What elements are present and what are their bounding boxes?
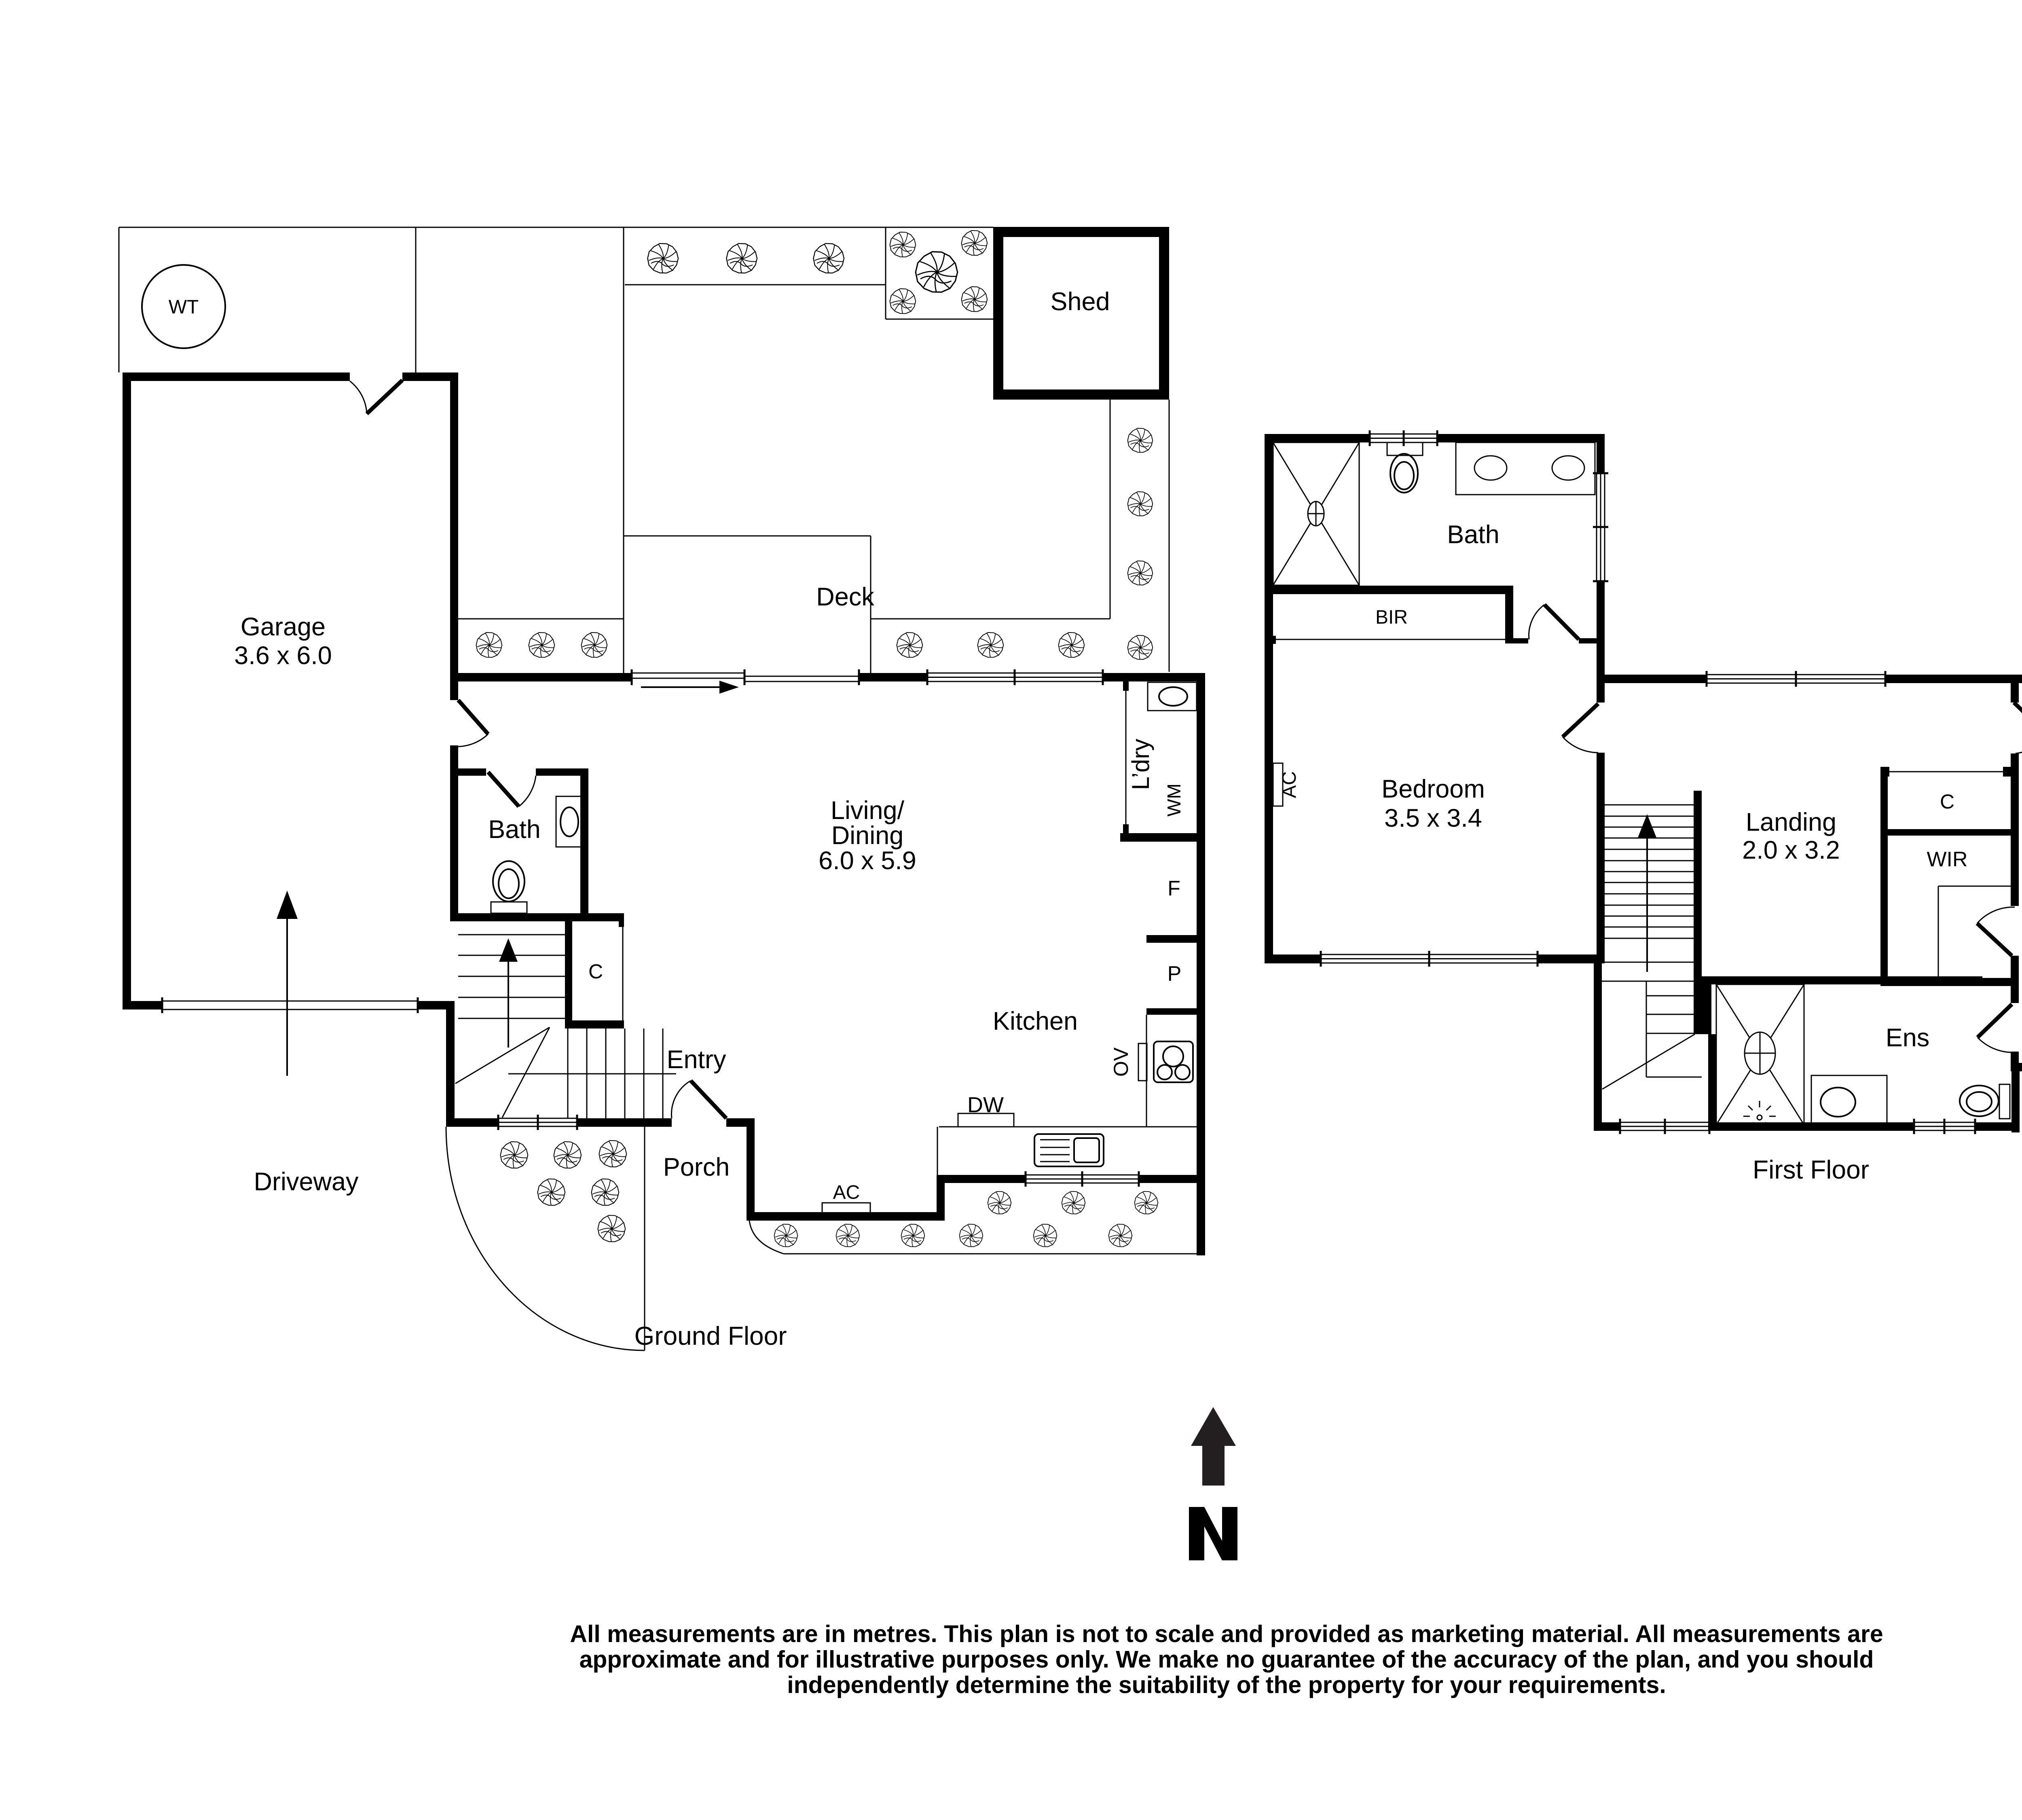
svg-text:Porch: Porch (663, 1153, 730, 1181)
svg-text:BIR: BIR (1375, 607, 1408, 628)
svg-text:OV: OV (1110, 1047, 1132, 1077)
svg-text:AC: AC (833, 1182, 860, 1203)
svg-text:independently determine the su: independently determine the suitability … (787, 1672, 1666, 1698)
svg-text:Garage: Garage (241, 613, 326, 641)
svg-text:DW: DW (967, 1093, 1004, 1117)
svg-text:Bath: Bath (488, 815, 541, 844)
svg-text:Entry: Entry (666, 1045, 726, 1074)
svg-text:WIR: WIR (1927, 848, 1967, 871)
svg-text:2.0 x 3.2: 2.0 x 3.2 (1742, 836, 1840, 864)
svg-text:WM: WM (1163, 783, 1184, 817)
svg-text:All measurements are in metres: All measurements are in metres. This pla… (570, 1621, 1883, 1647)
svg-text:3.6 x 6.0: 3.6 x 6.0 (234, 641, 332, 670)
svg-text:Bedroom: Bedroom (1381, 775, 1485, 803)
svg-text:F: F (1168, 877, 1180, 900)
svg-text:3.5 x 3.4: 3.5 x 3.4 (1384, 804, 1482, 832)
svg-text:Bath: Bath (1447, 521, 1500, 549)
svg-text:C: C (588, 960, 603, 983)
svg-text:AC: AC (1279, 771, 1300, 798)
svg-text:Kitchen: Kitchen (993, 1007, 1078, 1035)
svg-text:Ground Floor: Ground Floor (634, 1321, 787, 1350)
svg-text:Living/: Living/ (831, 796, 905, 825)
svg-text:Ens: Ens (1886, 1024, 1930, 1052)
svg-text:approximate and for illustrati: approximate and for illustrative purpose… (580, 1646, 1874, 1673)
svg-text:L’dry: L’dry (1127, 739, 1154, 790)
svg-text:Shed: Shed (1050, 288, 1110, 316)
svg-text:Landing: Landing (1746, 808, 1836, 836)
svg-text:First Floor: First Floor (1753, 1155, 1869, 1184)
svg-text:P: P (1168, 962, 1182, 986)
svg-text:Deck: Deck (816, 583, 874, 611)
svg-text:Dining: Dining (831, 821, 904, 850)
svg-text:Driveway: Driveway (254, 1168, 359, 1196)
svg-text:C: C (1940, 790, 1954, 813)
svg-text:6.0 x 5.9: 6.0 x 5.9 (819, 847, 916, 875)
svg-text:WT: WT (169, 296, 199, 318)
